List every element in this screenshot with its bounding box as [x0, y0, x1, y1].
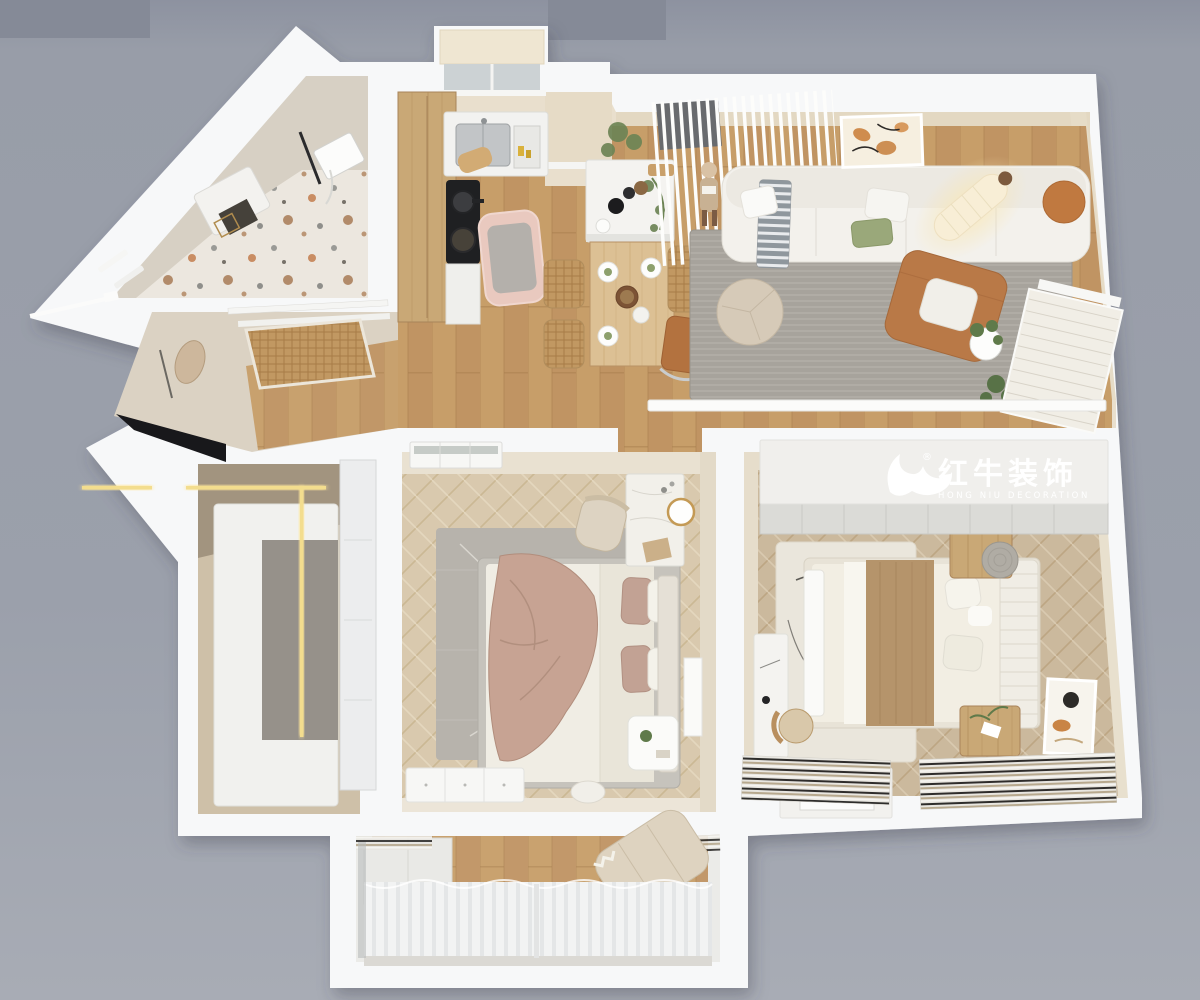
- bedroom2-wall-art: [1044, 679, 1096, 755]
- dish-soap-bottle: [518, 146, 524, 156]
- kitchen-wall-stub: [545, 92, 612, 166]
- striped-rug: [741, 755, 890, 804]
- vanity-desk: [626, 474, 694, 566]
- leaning-canvas: [684, 658, 702, 736]
- foot-bench: [804, 570, 824, 716]
- base-cabinet: [446, 264, 480, 324]
- closet-sliding-panel: [340, 460, 376, 790]
- bronze-pot: [634, 181, 648, 195]
- tan-blanket: [866, 560, 934, 726]
- kitchen-rug: [477, 209, 546, 307]
- bed2-pillow: [944, 576, 982, 610]
- orange-round-cushion: [1043, 181, 1085, 223]
- kitchen-floor-strip: [398, 322, 456, 428]
- window-post: [534, 884, 539, 958]
- background-shadow-block-right: [548, 0, 666, 40]
- logo-registered-mark: ®: [922, 452, 932, 463]
- kitchen-window-blind: [440, 30, 544, 64]
- dish-rack: [514, 126, 540, 168]
- bedroom2-bed: [804, 558, 1040, 728]
- round-textured-stool: [982, 542, 1018, 578]
- pouf: [717, 279, 783, 345]
- glass-edge: [358, 842, 366, 958]
- master-door: [410, 442, 502, 468]
- master-right-wall-face: [700, 452, 716, 812]
- rattan-chair: [544, 260, 584, 308]
- room-second-bedroom: ® 红牛装饰 HONG NIU DECORATION: [741, 440, 1128, 818]
- background-shadow-block-left: [0, 0, 150, 38]
- faucet: [481, 118, 487, 124]
- green-pillow: [851, 218, 893, 248]
- nightstand: [628, 716, 678, 770]
- rattan-chair-2: [544, 320, 584, 368]
- wall-art: [841, 115, 923, 168]
- dresser: [406, 768, 524, 802]
- logo-english-text: HONG NIU DECORATION: [938, 491, 1090, 501]
- floorplan-canvas: ® 红牛装饰 HONG NIU DECORATION: [0, 0, 1200, 1000]
- master-bedroom-door-gap: [618, 424, 702, 454]
- wardrobe-cabinet: ® 红牛装饰 HONG NIU DECORATION: [760, 440, 1108, 534]
- rattan-mat: [246, 320, 374, 388]
- logo-chinese-text: 红牛装饰: [938, 457, 1078, 492]
- frying-pan: [452, 191, 474, 213]
- pot: [451, 228, 475, 252]
- striped-rug-2: [919, 753, 1117, 810]
- white-bowl: [596, 219, 610, 233]
- fringe-textile-left: [356, 836, 432, 850]
- nightstand-plant: [640, 730, 652, 742]
- bedroom2-desk: [754, 634, 788, 758]
- floorplan-render: ® 红牛装饰 HONG NIU DECORATION: [0, 0, 1200, 1000]
- white-pillow-2: [864, 187, 910, 223]
- room-master-bedroom: [402, 442, 716, 812]
- channel-headboard: [1000, 560, 1038, 728]
- black-vase: [608, 198, 624, 214]
- nightstand-bottom: [960, 706, 1020, 756]
- bedroom-stool: [571, 781, 605, 803]
- bed2-pillow-3: [968, 606, 992, 626]
- door-threshold: [648, 400, 1106, 411]
- gold-mirror: [668, 499, 694, 525]
- bed2-pillow-2: [942, 634, 983, 672]
